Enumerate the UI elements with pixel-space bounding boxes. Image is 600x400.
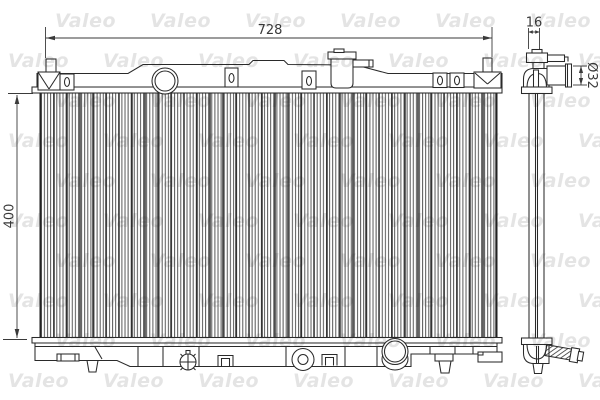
drawing-canvas: 728 400 16 Ø32 ValeoValeoValeoValeoValeo… [0,0,600,400]
bottom-tank [35,343,497,367]
filler-ring [152,68,178,94]
side-bottom-tank [522,338,585,374]
depth-dimension-label: 16 [526,16,543,31]
radiator-core [40,93,497,338]
bottom-header-plate [32,338,502,344]
side-top-tank [522,50,572,94]
mounting-tab-right-2 [450,73,464,88]
mounting-tab-right-1 [433,73,447,88]
top-header-plate [32,87,502,93]
side-outlet-pipe [545,343,584,363]
mounting-bracket-top-right [474,58,501,88]
mounting-tab-mid-right [302,71,316,89]
side-inlet-pipe [547,66,567,85]
filler-cap [328,52,356,59]
height-dimension: 400 [3,94,34,340]
outlet-port [382,339,408,371]
side-filler-cap [527,53,548,63]
bottom-tab-right [439,361,451,373]
front-view [32,49,502,373]
height-dimension-label: 400 [3,204,18,229]
sensor-port [292,349,314,371]
top-tank [37,61,502,88]
bottom-right-bracket [435,354,453,373]
overflow-tube [353,60,373,67]
pipe-diameter-dimension: Ø32 [573,62,599,89]
stepped-bracket-right [478,352,502,362]
side-core [529,94,544,339]
width-dimension: 728 [46,23,493,58]
side-view [522,50,585,374]
width-dimension-label: 728 [258,23,283,38]
side-mounting-pin [533,364,543,374]
mounting-tab-mid-left [225,68,238,87]
technical-drawing: 728 400 16 Ø32 [0,0,600,400]
pipe-diameter-label: Ø32 [584,62,599,89]
mounting-bracket-top-left [38,59,74,90]
depth-dimension: 16 [526,16,543,50]
bottom-tab-left [87,361,98,373]
